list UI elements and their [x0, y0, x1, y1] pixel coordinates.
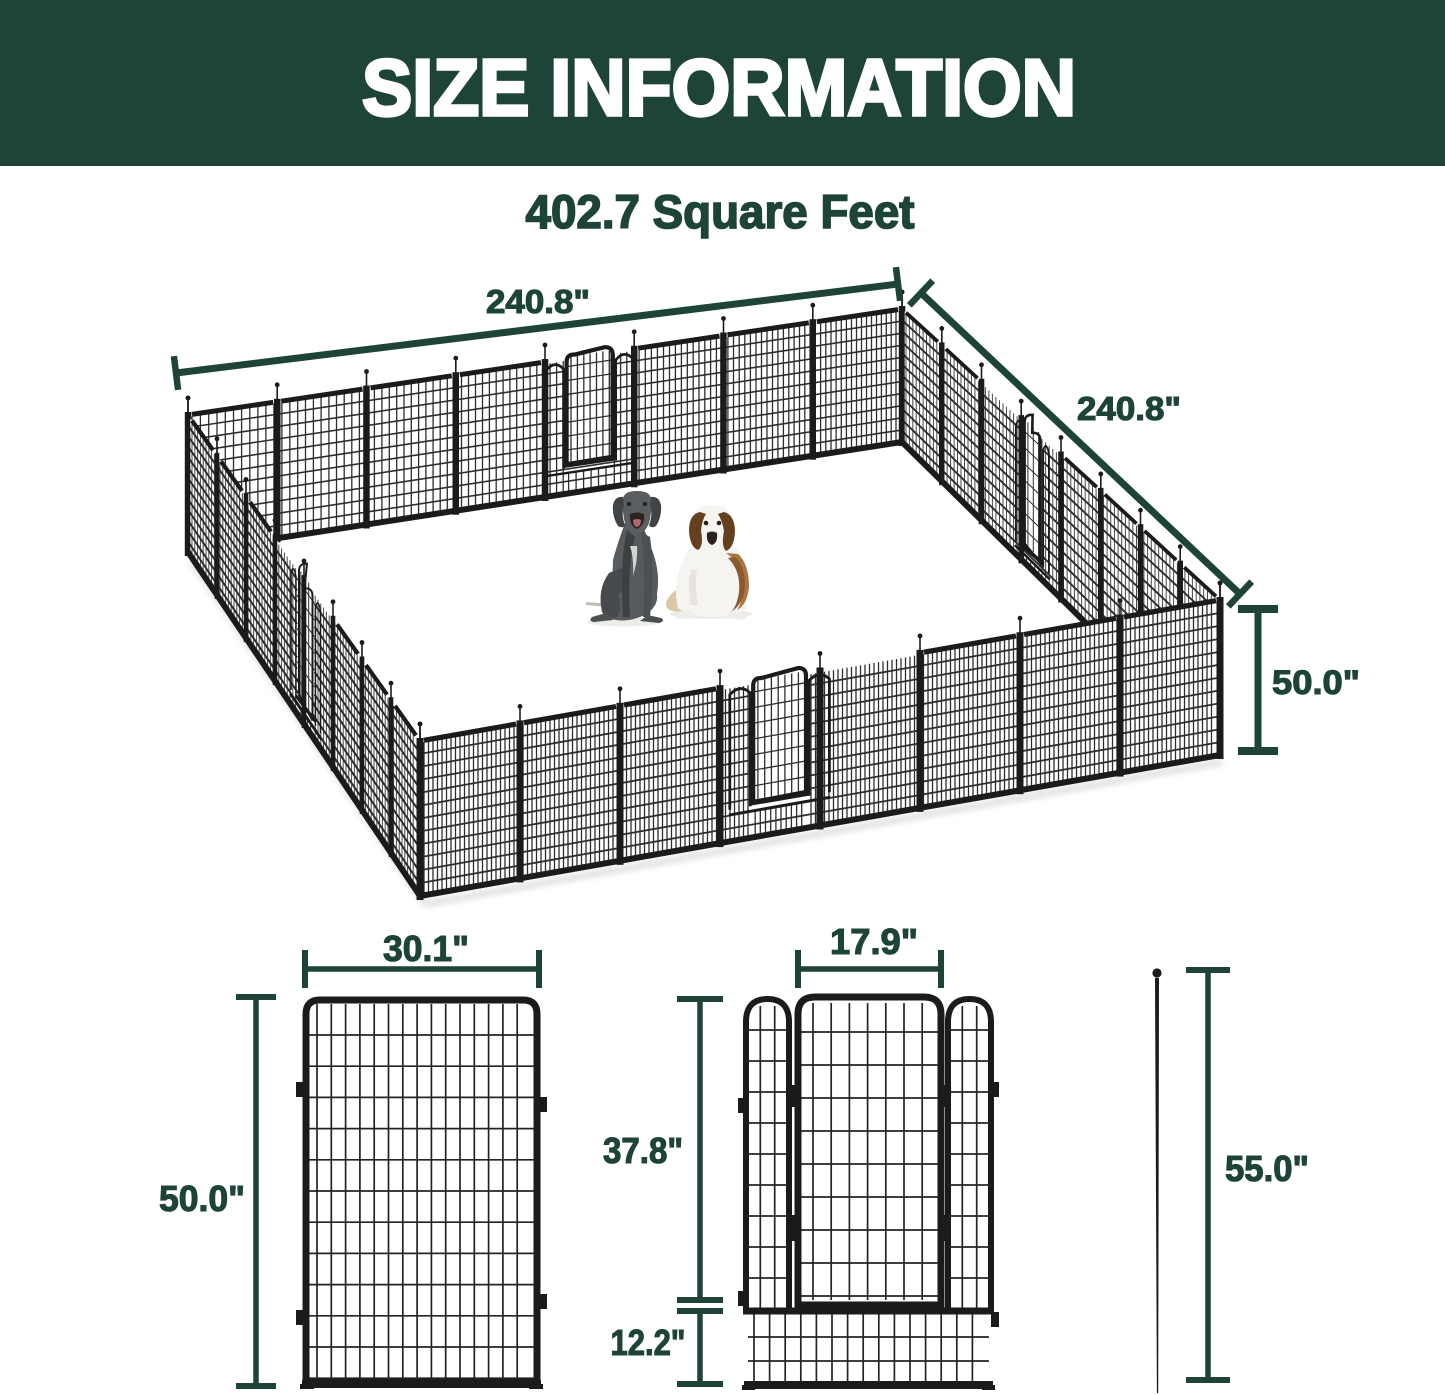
svg-text:30.1": 30.1": [383, 928, 469, 969]
svg-text:37.8": 37.8": [603, 1130, 683, 1171]
svg-text:402.7 Square Feet: 402.7 Square Feet: [526, 185, 915, 238]
svg-text:SIZE INFORMATION: SIZE INFORMATION: [362, 43, 1076, 132]
svg-text:12.2": 12.2": [611, 1322, 686, 1363]
svg-text:50.0": 50.0": [1272, 664, 1360, 702]
svg-text:17.9": 17.9": [830, 921, 918, 962]
svg-text:55.0": 55.0": [1225, 1148, 1309, 1189]
svg-text:50.0": 50.0": [159, 1178, 245, 1219]
svg-text:240.8": 240.8": [486, 283, 590, 320]
svg-text:240.8": 240.8": [1077, 390, 1181, 427]
